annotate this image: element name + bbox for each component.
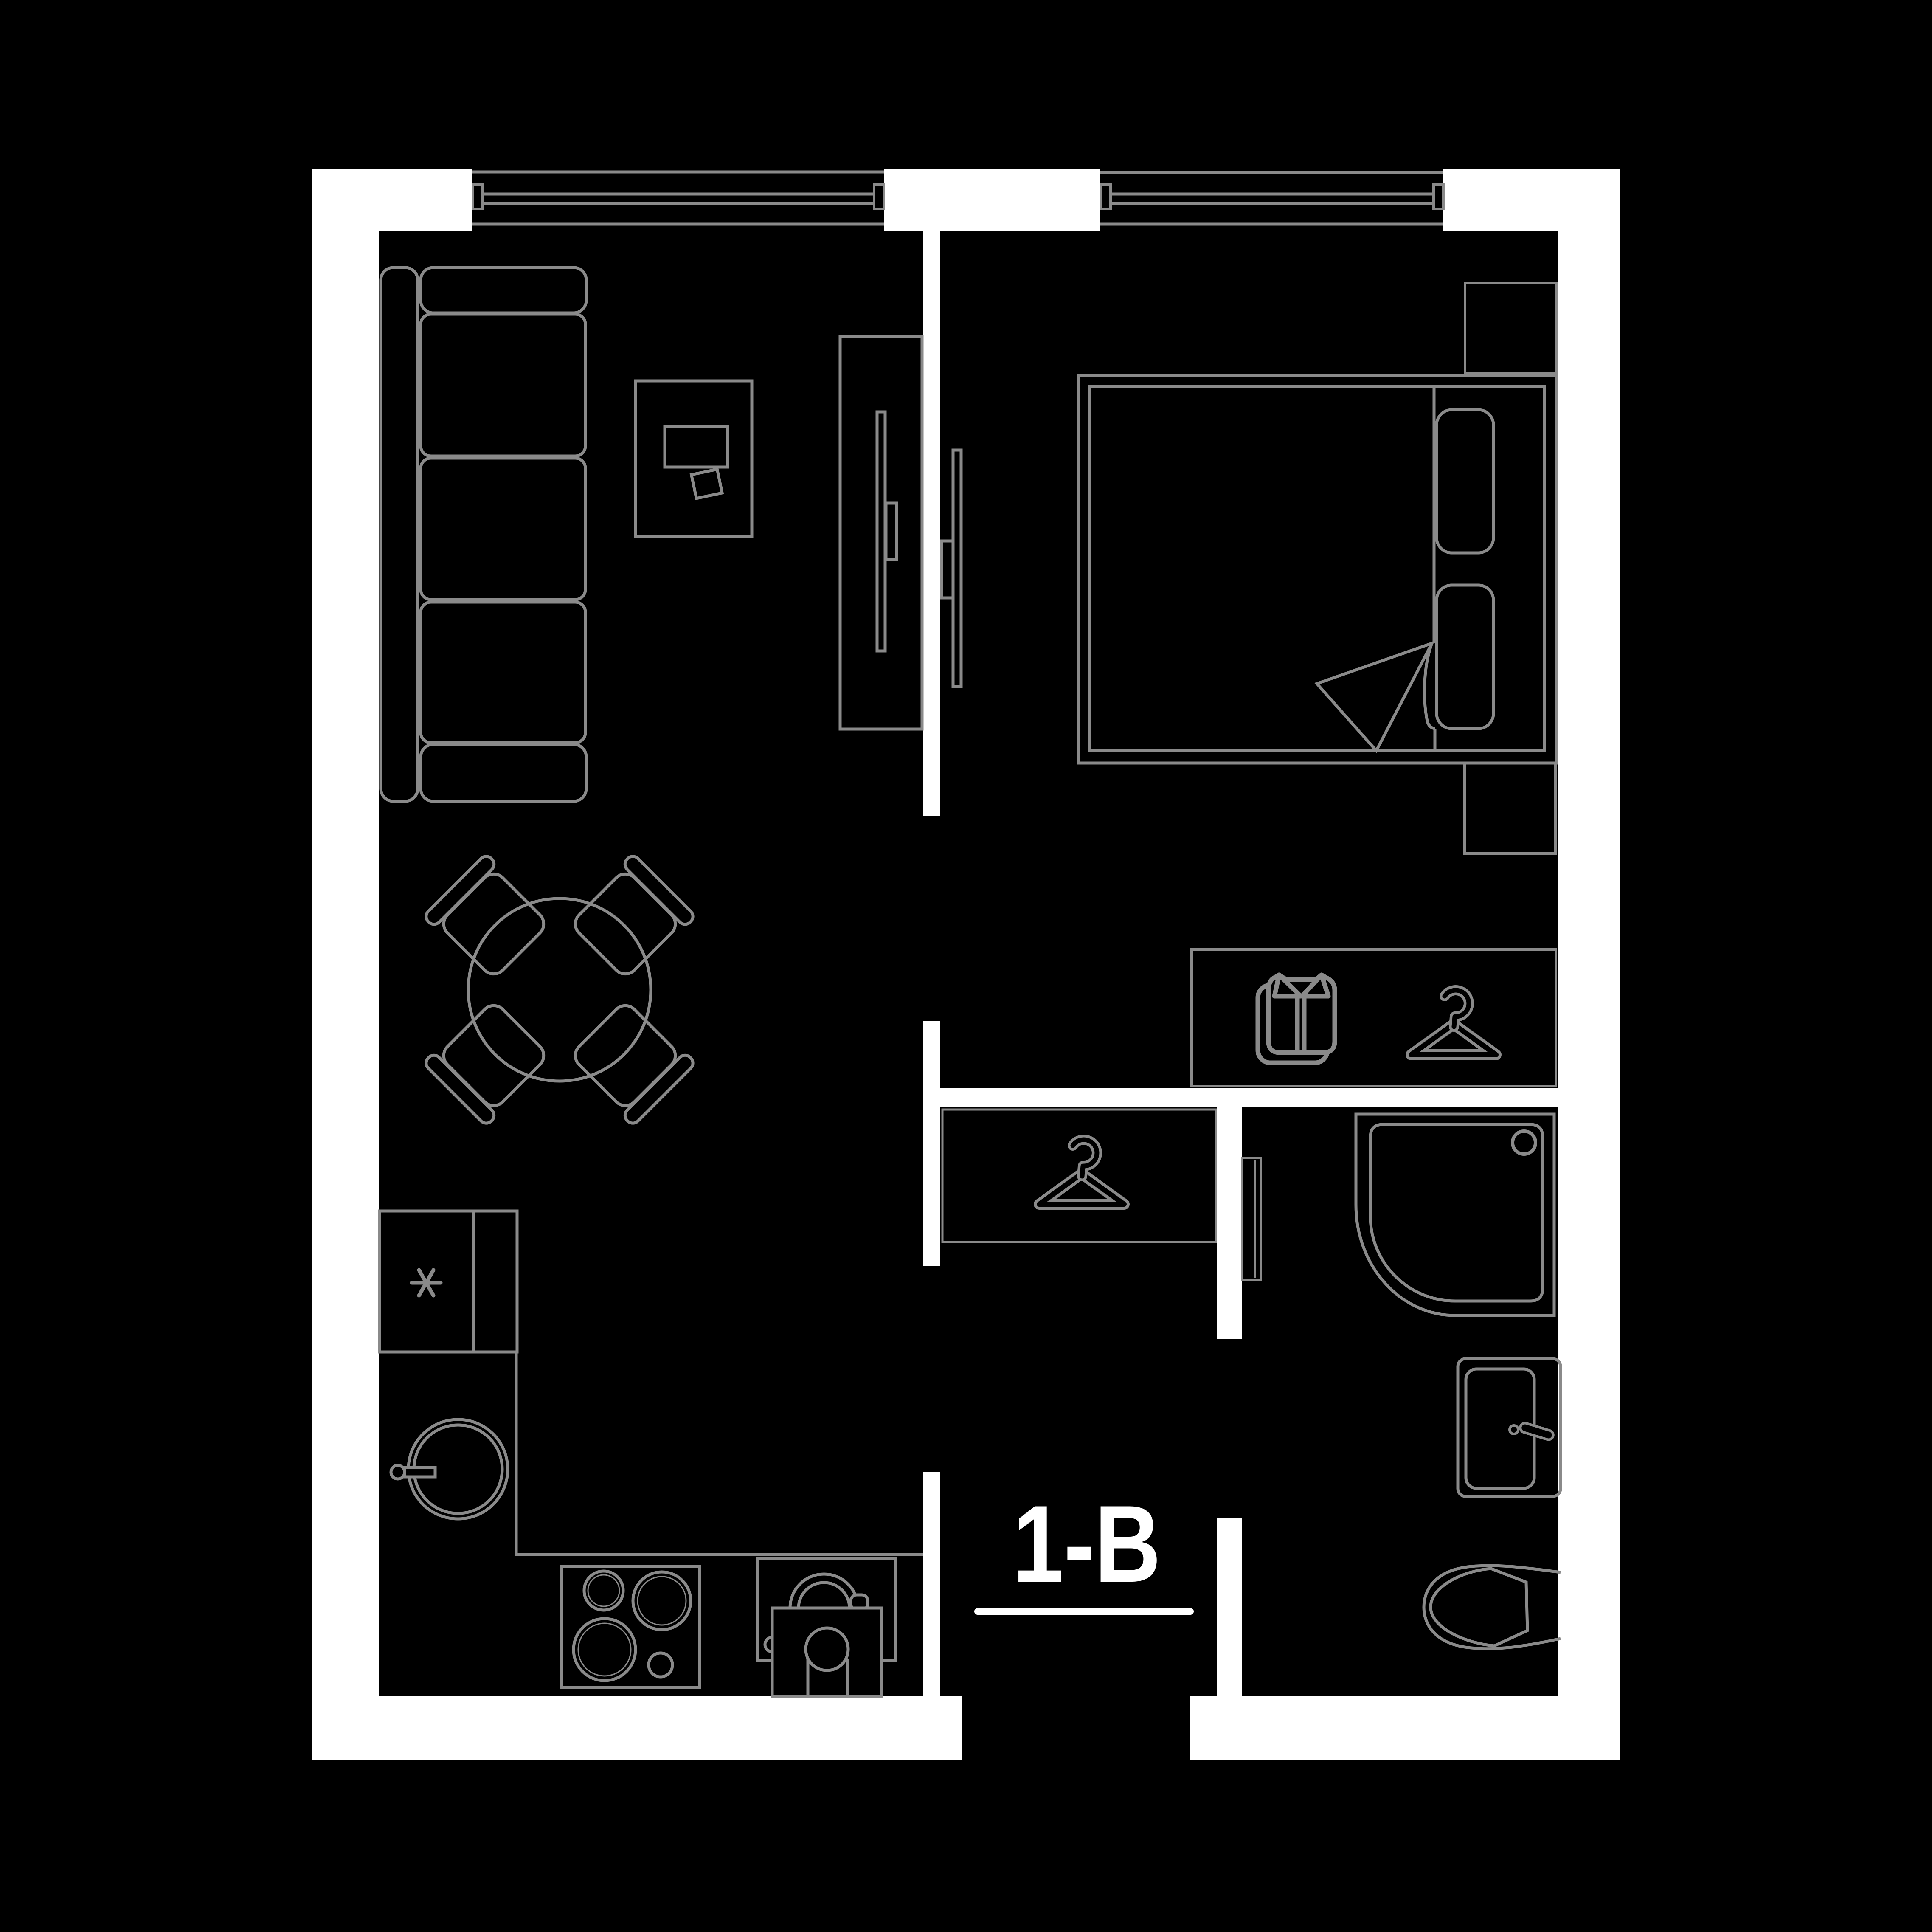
- svg-text:1-B: 1-B: [1012, 1483, 1161, 1605]
